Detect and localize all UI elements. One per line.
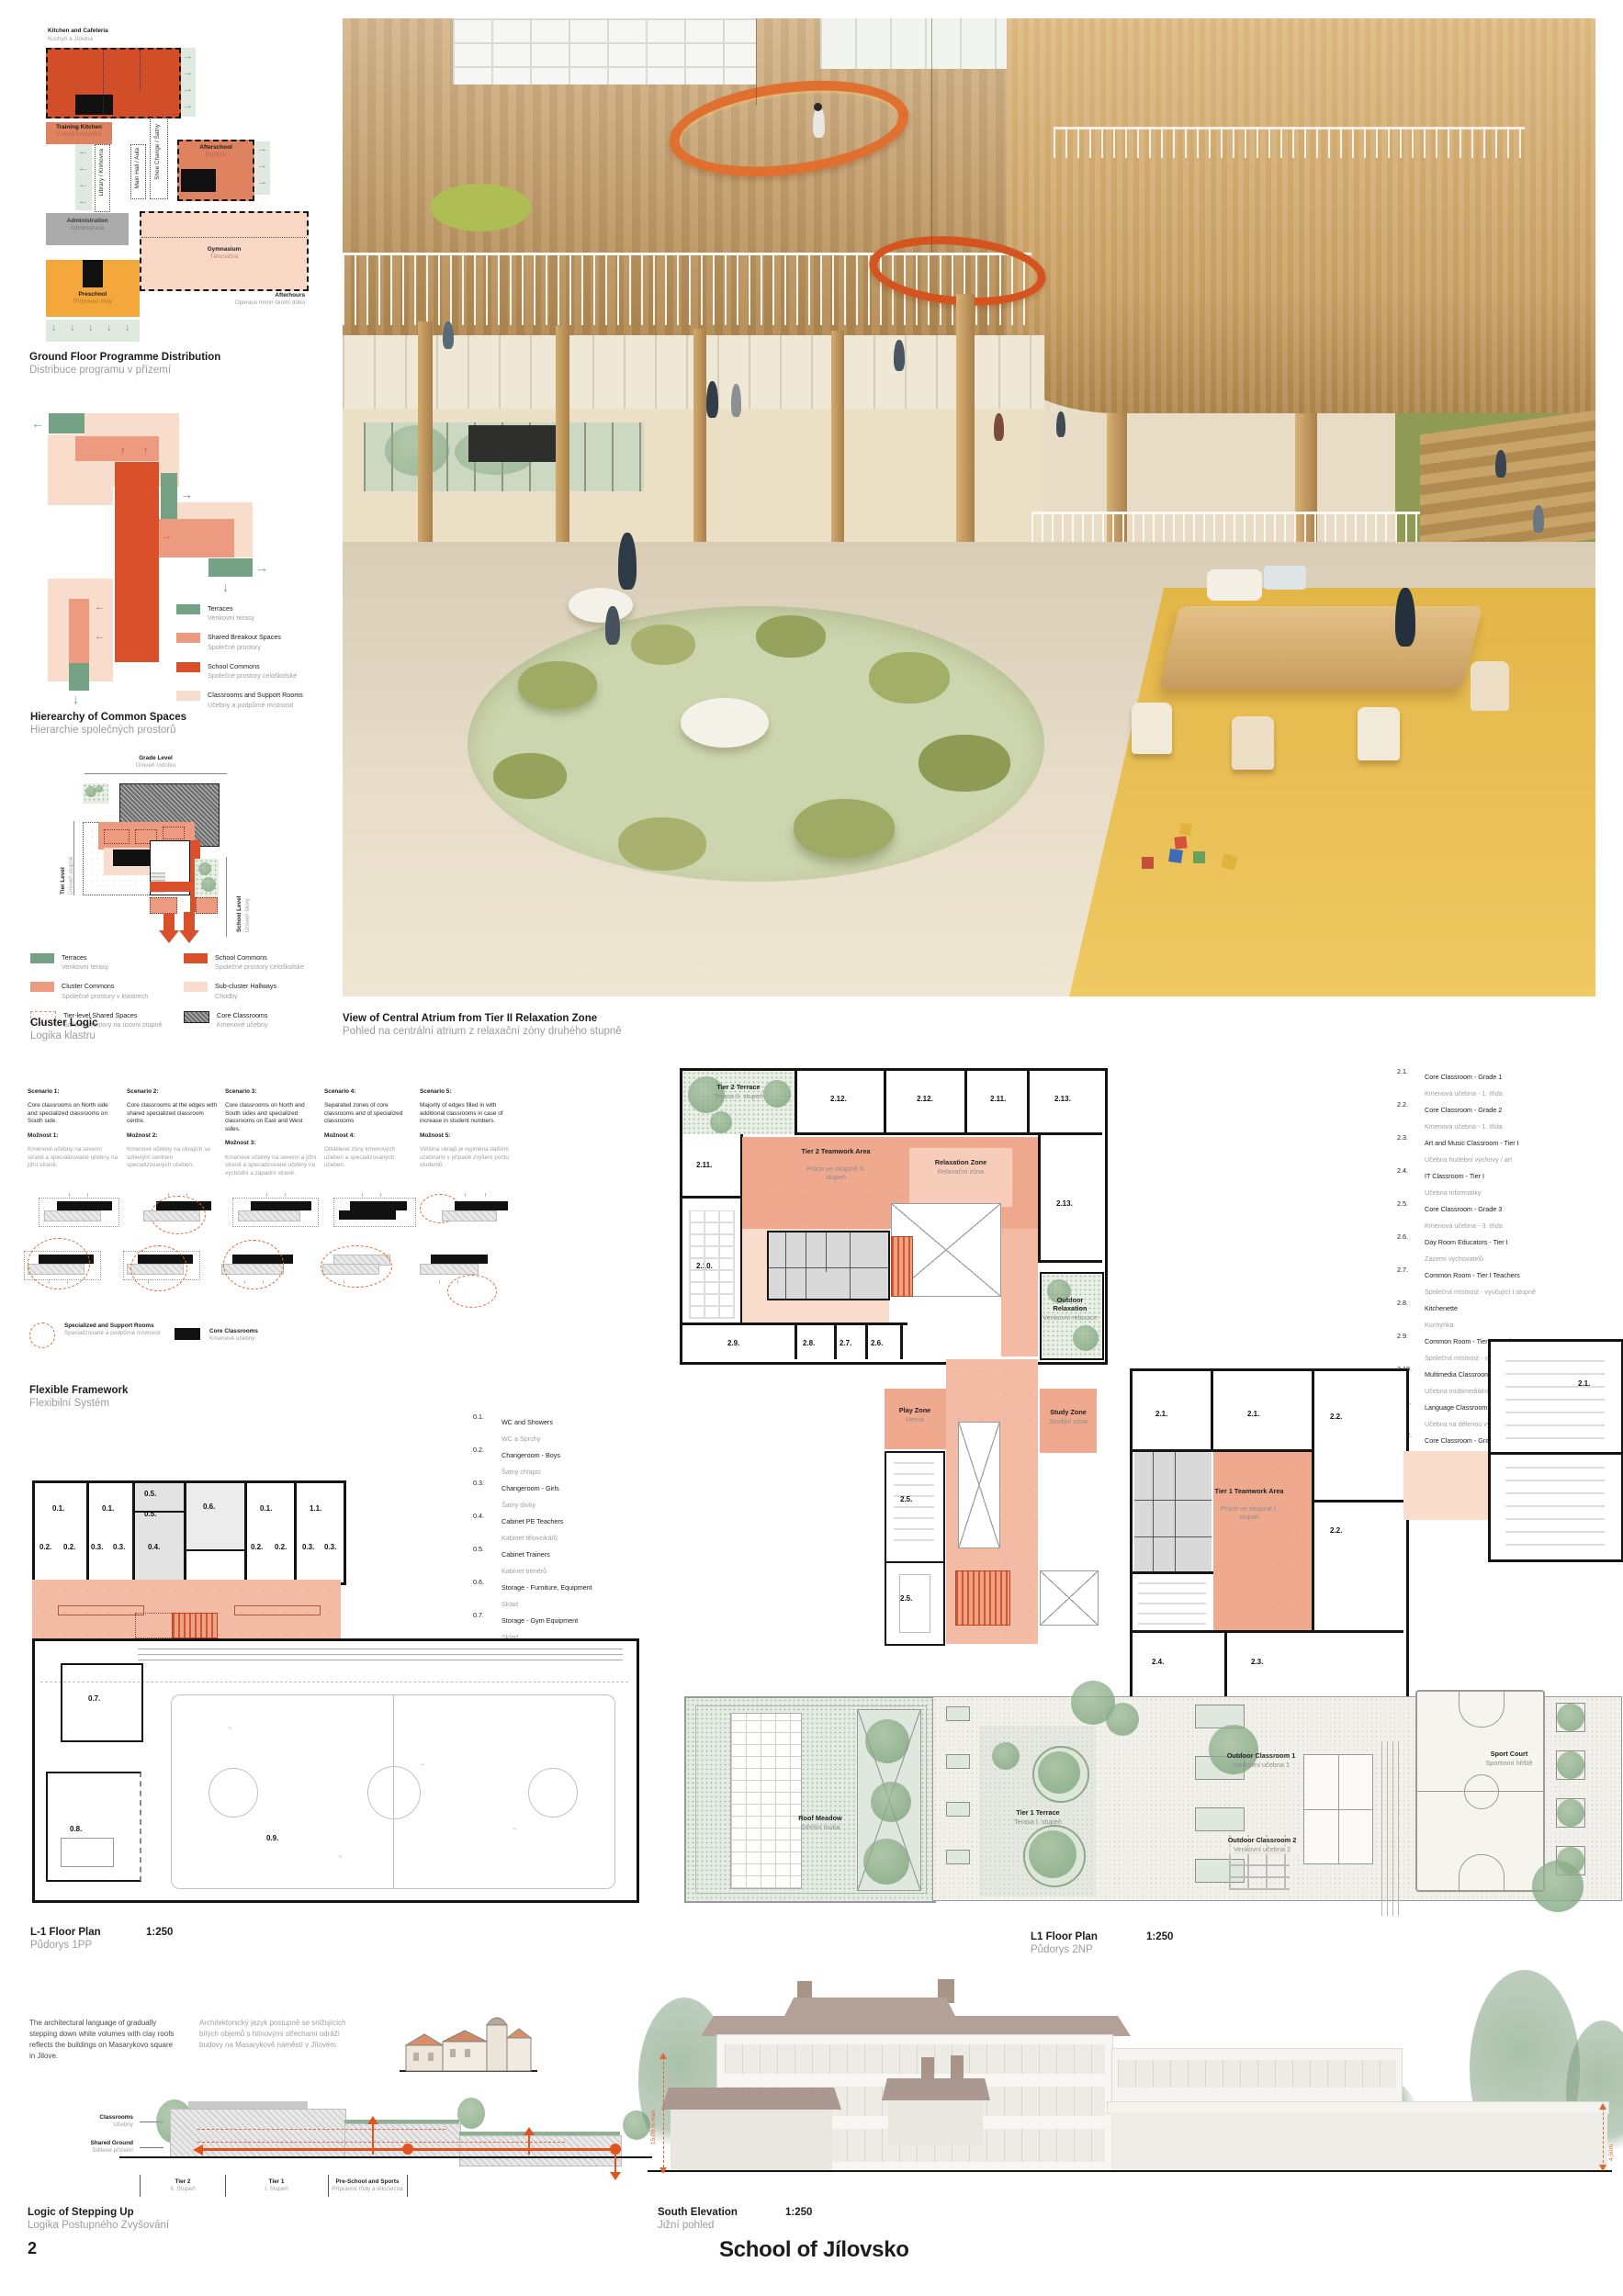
flow-arrow-icon: ←	[78, 146, 88, 157]
plan-l1-scale: 1:250	[1146, 1931, 1173, 1942]
zone-label: Tier 2 Terrace	[705, 1084, 772, 1092]
paper-stack	[1207, 569, 1262, 601]
kitchen-label: Kitchen and Cafeteria	[48, 28, 108, 35]
commons-arrow-icon: ↑	[120, 445, 126, 456]
room-number: 2.8.	[803, 1339, 815, 1347]
room-number: 2.4.	[1152, 1658, 1164, 1666]
zone-label: Tier 1 Terrace	[1003, 1809, 1073, 1818]
room-number: 2.1.	[1578, 1379, 1590, 1388]
zone-label: Roof Meadow	[788, 1815, 852, 1823]
plan-l1: Tier 2 Terrace Terasa II. stupeň 2.12. 2…	[680, 1056, 1623, 1901]
preschool-terrace-strip: ↓ ↓ ↓ ↓ ↓	[46, 320, 140, 342]
south-elevation: 15,00 m max 4,50m	[648, 1970, 1617, 2200]
white-table	[569, 588, 633, 623]
preschool-volume	[459, 2135, 622, 2167]
pouf	[618, 817, 706, 871]
court	[171, 1694, 615, 1889]
kitchen-block	[46, 48, 181, 118]
terrace-arrow-icon: ←	[31, 416, 44, 431]
zone-label: Outdoor Classroom 2	[1223, 1837, 1301, 1845]
programme-diagram: Kitchen and Cafeteria Kuchyň a Jídelna →…	[28, 18, 335, 386]
room-number: 2.3.	[1251, 1658, 1263, 1666]
room-number: 0.3.	[113, 1543, 125, 1551]
tier1-teamwork-zone	[1213, 1452, 1312, 1630]
room-number: 0.3.	[91, 1543, 103, 1551]
commons-arrow-icon: ←	[95, 602, 105, 613]
room-number: 2.11.	[696, 1161, 712, 1169]
zone-label: Sport Court	[1479, 1750, 1539, 1759]
scenario-column: Scenario 3: Core classrooms on North and…	[225, 1088, 319, 1177]
room-number: 0.3.	[324, 1543, 336, 1551]
stair	[172, 1613, 218, 1638]
board-title: School of Jílovsko	[719, 2237, 909, 2263]
room-number: 0.9.	[266, 1834, 278, 1842]
roof-meadow	[684, 1696, 936, 1903]
flow-arrow-icon: →	[183, 51, 193, 62]
person	[706, 381, 718, 418]
preschool-block: Preschool Přípravné třídy	[46, 260, 140, 317]
room-number: 0.5.	[144, 1490, 156, 1498]
presentation-board: { "icons":{"arrow_right":"→","arrow_left…	[0, 0, 1623, 2296]
cluster-terrace	[83, 783, 108, 804]
zone-label: Outdoor Relaxation	[1042, 1297, 1099, 1313]
cluster-black-block	[113, 850, 150, 866]
classrooms-label: Classrooms	[28, 2114, 133, 2122]
cluster-terrace-right	[195, 859, 219, 897]
concept-text-cz: Architektonický jazyk postupně se snižuj…	[199, 2018, 346, 2051]
atrium-render	[343, 18, 1595, 996]
height-dimension	[663, 2057, 664, 2167]
zone-label: Tier 2 Teamwork Area	[801, 1148, 871, 1156]
wood-table	[1159, 606, 1482, 689]
chair	[1358, 707, 1400, 760]
person	[894, 340, 905, 371]
flow-arrow-icon: →	[257, 176, 267, 187]
shared-ground-label: Shared Ground	[28, 2140, 133, 2147]
room-number: 2.12.	[917, 1095, 933, 1103]
cluster-diagram: Grade Level Úroveň ročníku Tier Level Úr…	[28, 753, 344, 1061]
kitchen-label-cz: Kuchyň a Jídelna	[48, 36, 93, 43]
page-number: 2	[28, 2239, 37, 2258]
room-number: 0.7.	[88, 1694, 100, 1703]
library-corridor: Library / Knihovna	[95, 144, 110, 212]
room-number: 1.1.	[310, 1504, 321, 1513]
flow-arrow-icon: ↓	[51, 322, 57, 333]
sport-court	[1415, 1690, 1545, 1892]
masaryk-square-sketch	[395, 2007, 542, 2078]
plan-l-minus-1: 0.1. 0.1. 0.5. 0.5. 0.6. 0.1. 1.1. 0.2. …	[32, 1468, 637, 1901]
classroom	[885, 1451, 945, 1565]
room-number: 2.12.	[830, 1095, 847, 1103]
flow-arrow-icon: ↓	[107, 322, 112, 333]
room-number: 2.2.	[1330, 1412, 1342, 1421]
table-tennis	[1303, 1754, 1373, 1864]
flow-arrow-icon: →	[183, 84, 193, 95]
flow-arrow-icon: ←	[78, 196, 88, 207]
scenario-column: Scenario 5: Majority of edges filled in …	[420, 1088, 512, 1170]
room-number: 2.7.	[840, 1339, 851, 1347]
kitchen-terrace-strip: → → → →	[181, 48, 196, 117]
chair	[1471, 661, 1509, 711]
corridor	[32, 1580, 341, 1638]
scenario-diagram: ↑↑ ↓	[324, 1194, 416, 1309]
elevation-caption: South Elevation	[658, 2207, 738, 2218]
flow-arrow-icon: ↓	[70, 322, 75, 333]
flow-arrow-icon: →	[183, 67, 193, 78]
cluster-legend-right: School CommonsSpolečné prostory celoškol…	[184, 953, 340, 1040]
hierarchy-legend: TerracesVenkovní terasy Shared Breakout …	[176, 604, 337, 720]
flow-arrow-icon: ←	[78, 163, 88, 174]
room-number: 2.11.	[990, 1095, 1006, 1103]
person	[443, 321, 454, 349]
room-number: 2.5.	[900, 1495, 912, 1503]
plan-l-minus1-caption: L-1 Floor Plan	[30, 1927, 101, 1938]
left-pavilion-glass	[671, 2110, 832, 2170]
programme-caption: Ground Floor Programme Distribution	[29, 352, 220, 363]
scenario-column: Scenario 2: Core classrooms at the edges…	[127, 1088, 219, 1170]
tier2-scale-label: Tier 2	[141, 2178, 224, 2186]
gymnastics-hall	[46, 1772, 141, 1882]
preschool-scale-label: Pre-School and Sports	[330, 2178, 405, 2186]
person	[994, 413, 1004, 441]
cluster-caption: Cluster Logic	[30, 1018, 97, 1029]
zone-label: Study Zone	[1040, 1409, 1097, 1417]
person	[1056, 411, 1065, 437]
person	[813, 107, 825, 138]
flow-arrow-icon: →	[257, 160, 267, 171]
flow-arrow-icon: ←	[78, 179, 88, 190]
library-label: Library / Knihovna	[98, 149, 106, 197]
person	[1395, 588, 1415, 647]
wc-core-b	[1134, 1452, 1212, 1571]
flexible-caption: Flexible Framework	[29, 1385, 128, 1396]
storage-room	[61, 1663, 143, 1742]
courtyard: Tier 1 Terrace Terasa I. stupeň Outdoor …	[932, 1696, 1622, 1901]
room-number: 0.2.	[39, 1543, 51, 1551]
scenario-diagram: ↑↑ ↓↓	[420, 1194, 512, 1309]
exit-arrow-icon	[159, 930, 179, 943]
person-head	[814, 103, 822, 111]
stepping-caption: Logic of Stepping Up	[28, 2207, 134, 2218]
room-number: 0.5.	[144, 1510, 156, 1518]
mezzanine-volume	[1007, 18, 1595, 413]
shoechange-corridor: Shoe Change / Šatny	[150, 118, 168, 199]
administration-block: Administration Administrace	[46, 213, 129, 245]
exit-arrow-icon	[179, 930, 199, 943]
commons-arrow-icon: ↑	[143, 445, 149, 456]
room-number: 0.2.	[63, 1543, 75, 1551]
pouf	[756, 615, 826, 658]
scenario-column: Scenario 4: Separated zones of core clas…	[324, 1088, 414, 1170]
stepping-diagram: Classrooms Učebny Shared Ground Sdílené …	[28, 2085, 661, 2223]
plan-l1-caption: L1 Floor Plan	[1031, 1931, 1098, 1942]
flow-arrow-icon: →	[257, 143, 267, 154]
flow-arrow-icon: ↓	[125, 322, 130, 333]
chair	[1232, 716, 1274, 770]
pouf	[631, 625, 695, 665]
changeroom-band	[32, 1480, 346, 1585]
terrace-arrow-icon: ↓	[73, 692, 79, 706]
tree-void	[857, 1709, 921, 1891]
scenario-diagram: ↑↑ ↓	[127, 1194, 219, 1309]
corridor-bridge	[1403, 1451, 1488, 1520]
elevation-scale: 1:250	[785, 2207, 812, 2218]
terrace-arrow-icon: →	[255, 560, 268, 575]
afterschool-terrace-strip: → → →	[255, 141, 270, 195]
person	[1533, 505, 1544, 533]
room-number: 2.2.	[1330, 1526, 1342, 1535]
terrace-arrow-icon: →	[180, 487, 193, 501]
room-number: 2.1.	[1247, 1410, 1259, 1418]
glass-wing	[1111, 2112, 1607, 2170]
scenario-column: Scenario 1: Core classrooms on North sid…	[28, 1088, 119, 1170]
room-number: 2.1.	[1155, 1410, 1167, 1418]
room-number: 0.1.	[52, 1504, 64, 1513]
render-caption: View of Central Atrium from Tier II Rela…	[343, 1013, 597, 1024]
tier1-scale-label: Tier 1	[227, 2178, 326, 2186]
dim-right-label: 4,50m	[1608, 2117, 1615, 2161]
room-number: 2.13.	[1054, 1095, 1071, 1103]
scenario-diagram: ↑↑ ↓↓	[28, 1194, 119, 1309]
pouf	[518, 661, 597, 709]
hierarchy-diagram: ↑ ↑ → → ← ← ← → → ↓ ↓ TerracesVenkovní t…	[28, 409, 340, 739]
person	[1495, 450, 1506, 478]
scenario-diagram: ↑↑ ↓↓	[225, 1194, 317, 1309]
stairs	[1420, 411, 1595, 564]
room-number: 2.5.	[900, 1594, 912, 1603]
room-number: 0.8.	[70, 1825, 82, 1833]
pouf	[869, 652, 950, 703]
wc-core	[767, 1231, 890, 1300]
pouf	[794, 799, 895, 858]
skylight-grid	[730, 1713, 802, 1889]
training-kitchen-block: Training Kitchen Cvičná kuchyňka	[46, 122, 112, 144]
stair	[891, 1236, 913, 1297]
mainhall-label: Main Hall / Aula	[134, 148, 141, 188]
room-number: 0.2.	[251, 1543, 263, 1551]
room-number: 0.6.	[203, 1503, 215, 1511]
books	[1264, 566, 1306, 590]
room-number: 0.1.	[102, 1504, 114, 1513]
room-number: 2.13.	[1056, 1199, 1073, 1208]
flexible-legend-2: Core Classrooms Kmenové učebny	[175, 1328, 358, 1344]
room-number: 0.2.	[275, 1543, 287, 1551]
wing-b	[1130, 1368, 1409, 1702]
pouf	[493, 753, 567, 799]
flow-arrow-icon: →	[183, 100, 193, 111]
afterhours-label: Afterhours	[165, 292, 305, 299]
dim-left-label: 15,00 m max	[650, 2080, 657, 2144]
pouf	[919, 735, 1010, 792]
green-pod	[430, 184, 531, 231]
mainhall-corridor: Main Hall / Aula	[130, 144, 146, 199]
atrium-void	[1040, 1570, 1099, 1626]
tier2-terrace	[682, 1071, 795, 1134]
desks	[1138, 1581, 1206, 1625]
desks	[689, 1210, 735, 1319]
concept-text-en: The architectural language of gradually …	[29, 2018, 175, 2062]
room-number: 0.3.	[302, 1543, 314, 1551]
chair	[1132, 703, 1172, 754]
person	[731, 384, 741, 417]
school-commons-bar	[115, 462, 159, 662]
height-dimension	[1603, 2108, 1604, 2167]
zone-label: Outdoor Classroom 1	[1225, 1752, 1297, 1761]
gymnasium-block: Gymnasium Tělocvična	[140, 211, 309, 291]
commons-arrow-icon: ←	[95, 631, 105, 642]
kitchen-core	[75, 95, 113, 115]
classroom	[885, 1561, 945, 1646]
plan-l-minus1-scale: 1:250	[146, 1927, 173, 1938]
room-number: 0.1.	[260, 1504, 272, 1513]
flow-arrow-icon: ↓	[88, 322, 94, 333]
zone-label: Tier 1 Teamwork Area	[1212, 1488, 1286, 1496]
skylight	[453, 18, 756, 84]
white-table	[681, 698, 769, 748]
library-terrace-strip: ← ← ← ←	[75, 144, 92, 210]
room-number: 2.6.	[871, 1339, 883, 1347]
stair	[955, 1570, 1010, 1626]
atrium-void	[958, 1422, 1000, 1548]
room-number: 0.4.	[148, 1543, 160, 1551]
commons-arrow-icon: →	[162, 531, 172, 542]
sports-hall: 0.7. 0.8. 0.9. ~ ~ ~ ~	[32, 1638, 639, 1903]
terrace-arrow-icon: ↓	[222, 580, 229, 594]
hierarchy-caption: Hierearchy of Common Spaces	[30, 712, 186, 723]
zone-label: Play Zone	[886, 1407, 943, 1415]
shoechange-label: Shoe Change / Šatny	[154, 124, 162, 180]
room-number: 2.9.	[727, 1339, 739, 1347]
zone-label: Relaxation Zone	[922, 1159, 999, 1167]
afterschool-block: Afterschool Družina	[177, 140, 254, 201]
right-rooms	[1488, 1339, 1623, 1562]
person	[618, 533, 637, 590]
